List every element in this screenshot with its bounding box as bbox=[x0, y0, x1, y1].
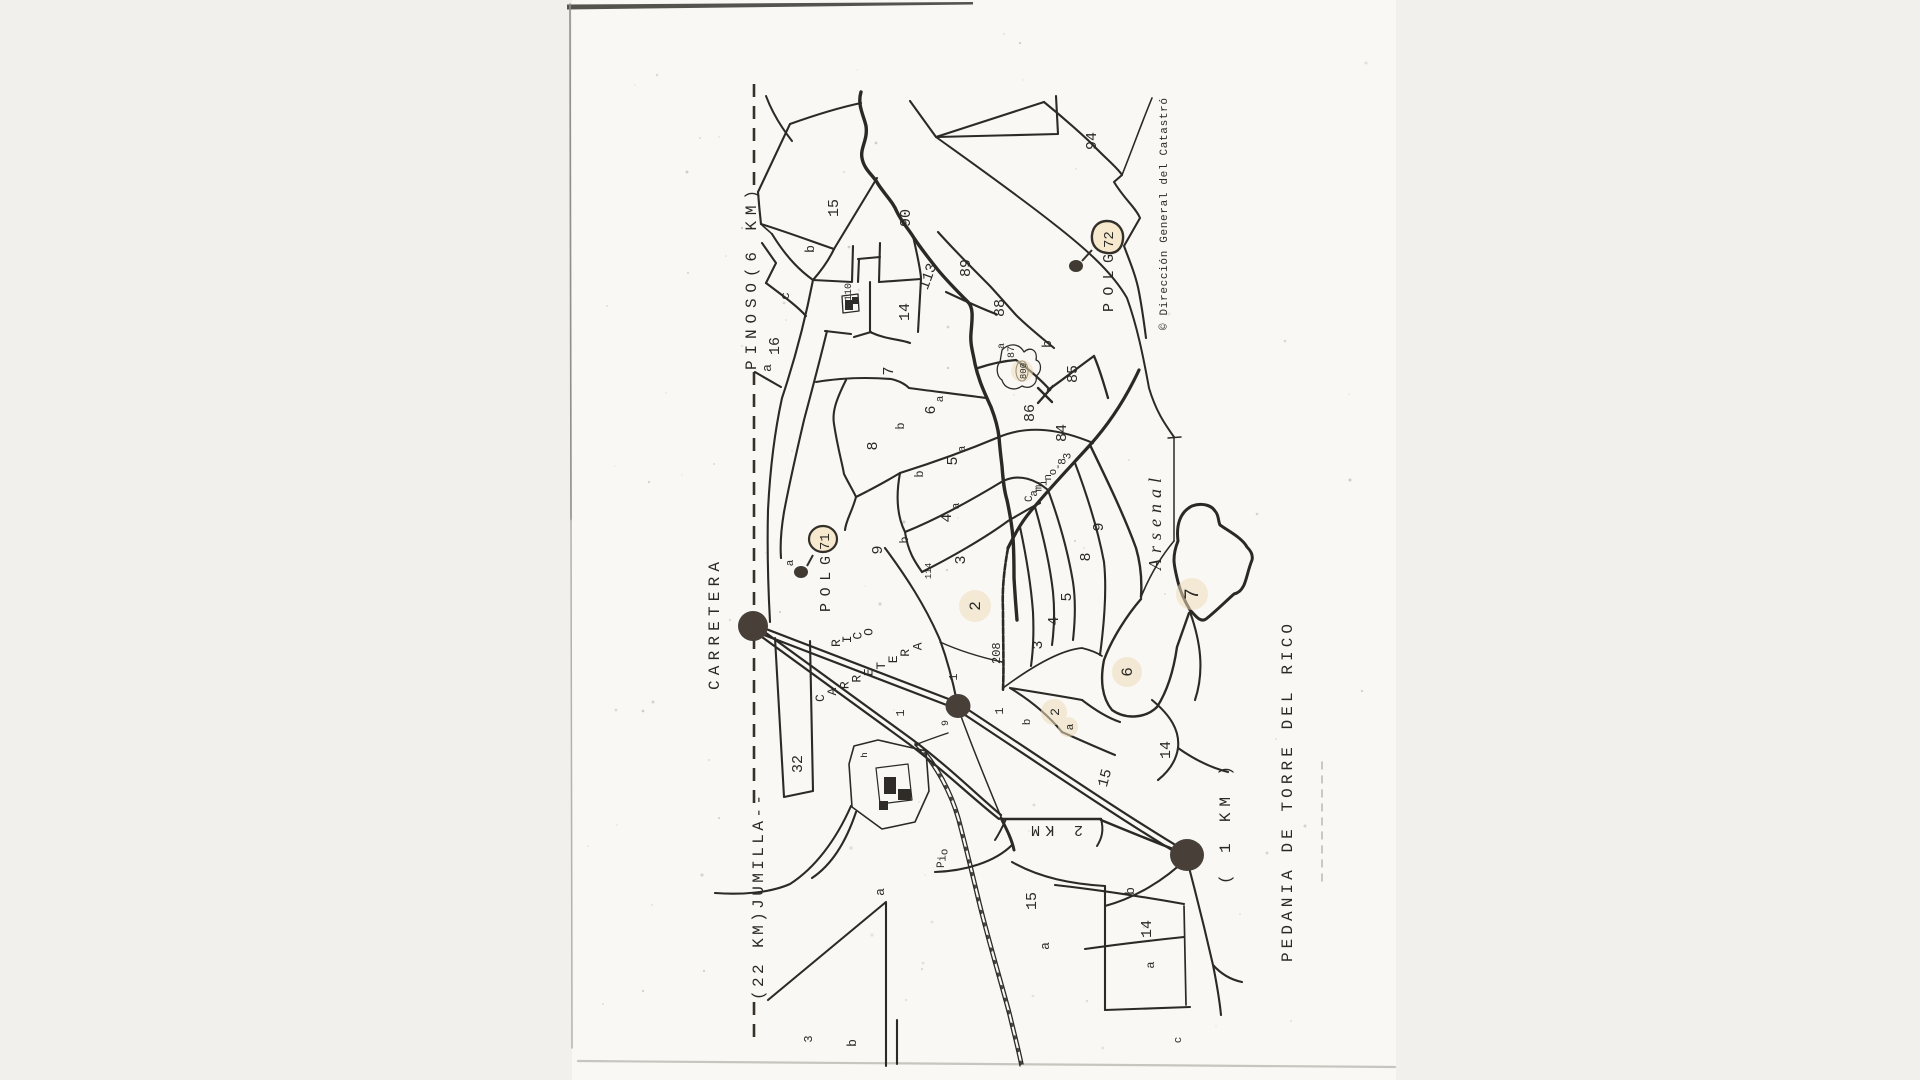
svg-text:208: 208 bbox=[990, 642, 1004, 664]
svg-text:b: b bbox=[1123, 887, 1138, 895]
svg-text:90: 90 bbox=[898, 209, 915, 227]
svg-text:2: 2 bbox=[967, 601, 985, 611]
svg-text:6: 6 bbox=[1119, 667, 1137, 677]
svg-text:15: 15 bbox=[826, 199, 843, 217]
svg-text:3: 3 bbox=[802, 1035, 816, 1042]
svg-text:a: a bbox=[1144, 961, 1158, 968]
svg-text:a: a bbox=[935, 395, 947, 402]
svg-text:71: 71 bbox=[818, 533, 834, 550]
svg-text:8: 8 bbox=[1078, 552, 1095, 561]
svg-text:b: b bbox=[913, 470, 927, 477]
svg-text:16: 16 bbox=[767, 337, 784, 355]
svg-text:9: 9 bbox=[941, 720, 952, 726]
svg-text:800: 800 bbox=[1019, 363, 1029, 379]
svg-text:4: 4 bbox=[939, 513, 956, 522]
svg-text:7: 7 bbox=[881, 366, 898, 375]
svg-text:© Dirección General del Catast: © Dirección General del Catastró bbox=[1159, 98, 1171, 330]
svg-text:b: b bbox=[803, 245, 818, 253]
svg-text:3: 3 bbox=[1030, 640, 1047, 649]
svg-text:9: 9 bbox=[1091, 522, 1108, 531]
svg-text:5: 5 bbox=[1059, 592, 1076, 601]
svg-text:4: 4 bbox=[1046, 616, 1063, 625]
svg-text:7: 7 bbox=[1182, 588, 1205, 600]
svg-text:a: a bbox=[785, 559, 797, 566]
svg-text:87: 87 bbox=[1007, 346, 1018, 358]
svg-text:1: 1 bbox=[894, 709, 908, 716]
svg-text:85: 85 bbox=[1065, 365, 1082, 383]
svg-text:b: b bbox=[894, 422, 908, 429]
svg-text:a: a bbox=[760, 364, 775, 372]
svg-text:5: 5 bbox=[945, 456, 962, 465]
svg-text:b: b bbox=[845, 1039, 860, 1047]
svg-text:8: 8 bbox=[865, 441, 882, 450]
svg-text:1: 1 bbox=[993, 707, 1007, 714]
svg-text:b: b bbox=[898, 536, 912, 543]
svg-text:a: a bbox=[1038, 942, 1053, 950]
svg-text:c: c bbox=[778, 292, 793, 300]
svg-text:1: 1 bbox=[947, 673, 961, 680]
svg-text:6: 6 bbox=[923, 405, 940, 414]
svg-text:84: 84 bbox=[1054, 424, 1071, 442]
svg-text:86: 86 bbox=[1022, 404, 1039, 422]
svg-text:89: 89 bbox=[958, 259, 975, 277]
svg-text:a: a bbox=[957, 445, 969, 452]
svg-text:CARRETERA: CARRETERA bbox=[706, 562, 724, 690]
svg-text:c: c bbox=[1173, 1037, 1185, 1044]
svg-text:a: a bbox=[873, 888, 888, 896]
svg-text:a: a bbox=[1065, 723, 1077, 730]
svg-text:88: 88 bbox=[992, 299, 1009, 317]
svg-text:110: 110 bbox=[844, 283, 855, 301]
svg-text:a: a bbox=[997, 343, 1008, 349]
svg-text:14: 14 bbox=[897, 303, 914, 321]
svg-text:14: 14 bbox=[1139, 920, 1156, 938]
svg-text:72: 72 bbox=[1102, 231, 1118, 248]
svg-text:2: 2 bbox=[1048, 708, 1063, 716]
svg-text:a: a bbox=[951, 502, 963, 509]
svg-text:32: 32 bbox=[790, 755, 807, 773]
svg-text:h: h bbox=[860, 752, 870, 757]
svg-text:b: b bbox=[1022, 719, 1034, 726]
svg-text:3: 3 bbox=[953, 555, 970, 564]
svg-text:9: 9 bbox=[870, 545, 887, 554]
svg-text:14: 14 bbox=[1158, 741, 1175, 759]
svg-text:114: 114 bbox=[924, 563, 934, 579]
svg-text:94: 94 bbox=[1084, 132, 1101, 150]
svg-text:15: 15 bbox=[1024, 892, 1041, 910]
svg-text:b: b bbox=[1040, 340, 1055, 348]
